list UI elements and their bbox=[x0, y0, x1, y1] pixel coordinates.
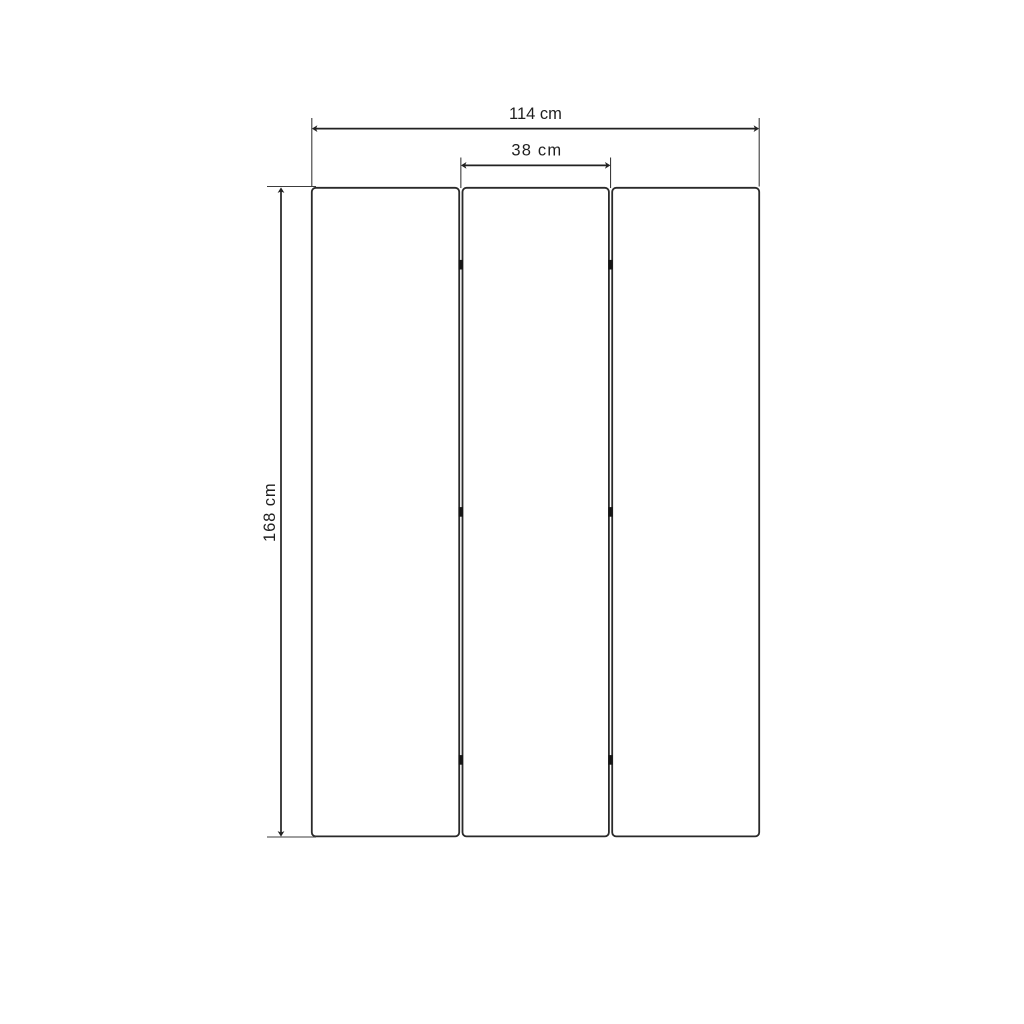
svg-text:38 cm: 38 cm bbox=[511, 142, 562, 160]
svg-text:168 cm: 168 cm bbox=[261, 482, 279, 542]
svg-text:114 cm: 114 cm bbox=[509, 105, 562, 123]
